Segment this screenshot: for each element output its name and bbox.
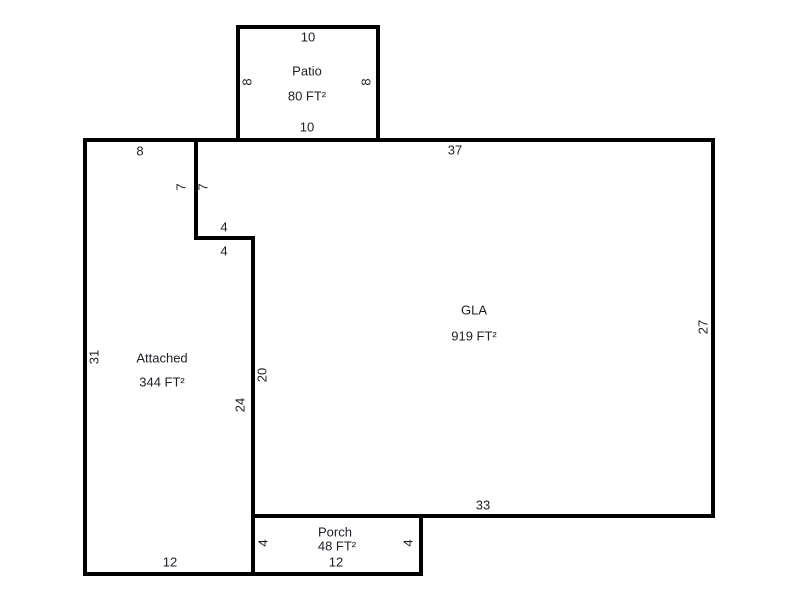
- room-area-patio: 80 FT²: [288, 90, 326, 103]
- dim-notch-horiz-attached: 4: [220, 221, 227, 234]
- dim-gla-right: 27: [697, 320, 710, 334]
- wall-outer-bottom: [83, 572, 423, 576]
- dim-notch-vert-gla: 7: [197, 183, 210, 190]
- wall-gla-bottom: [251, 514, 715, 518]
- dim-notch-vert-attached: 7: [175, 183, 188, 190]
- dim-porch-bottom: 12: [329, 556, 343, 569]
- dim-patio-bottom: 10: [300, 121, 314, 134]
- room-name-gla: GLA: [461, 304, 487, 317]
- wall-outer-right: [711, 138, 715, 518]
- dim-porch-left: 4: [257, 539, 270, 546]
- wall-porch-right: [419, 514, 423, 576]
- dim-attached-left: 31: [88, 350, 101, 364]
- wall-notch-step: [194, 236, 255, 240]
- wall-patio-right: [376, 25, 380, 142]
- room-name-porch: Porch: [318, 526, 352, 539]
- dim-patio-left: 8: [241, 78, 254, 85]
- dim-attached-right: 24: [234, 398, 247, 412]
- dim-notch-horiz-gla: 4: [220, 245, 227, 258]
- dim-gla-top: 37: [448, 144, 462, 157]
- dim-gla-left: 20: [256, 368, 269, 382]
- room-area-gla: 919 FT²: [451, 330, 497, 343]
- dim-gla-bottom: 33: [476, 499, 490, 512]
- room-area-attached: 344 FT²: [139, 376, 185, 389]
- floorplan-canvas: 10Patio80 FT²88108377744GLA919 FT²2731At…: [0, 0, 800, 600]
- wall-main-top: [83, 138, 715, 142]
- room-name-patio: Patio: [292, 65, 322, 78]
- dim-attached-bottom: 12: [163, 556, 177, 569]
- dim-attached-top: 8: [136, 145, 143, 158]
- dim-porch-right: 4: [402, 539, 415, 546]
- dim-patio-top: 10: [301, 31, 315, 44]
- dim-patio-right: 8: [360, 78, 373, 85]
- room-name-attached: Attached: [136, 352, 187, 365]
- room-area-porch: 48 FT²: [318, 540, 356, 553]
- wall-patio-top: [236, 25, 380, 29]
- wall-divider-lower: [251, 236, 255, 576]
